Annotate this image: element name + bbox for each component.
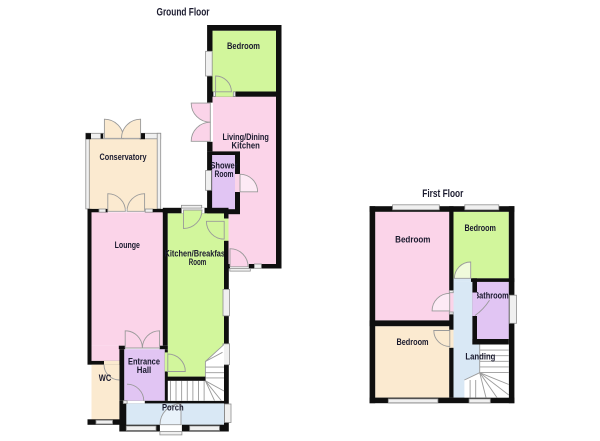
svg-text:WC: WC: [99, 373, 112, 383]
svg-text:Porch: Porch: [162, 403, 184, 413]
svg-text:First Floor: First Floor: [422, 188, 463, 200]
svg-text:Bathroom: Bathroom: [474, 291, 509, 301]
svg-text:Landing: Landing: [465, 352, 495, 362]
svg-text:Bedroom: Bedroom: [396, 337, 428, 347]
svg-text:Room: Room: [215, 169, 234, 179]
svg-text:Bedroom: Bedroom: [464, 223, 496, 233]
svg-text:Room: Room: [189, 257, 207, 267]
svg-text:Lounge: Lounge: [115, 240, 140, 250]
svg-text:Hall: Hall: [137, 365, 152, 375]
svg-text:Bedroom: Bedroom: [227, 41, 260, 51]
svg-text:Kitchen: Kitchen: [232, 141, 260, 151]
svg-text:Bedroom: Bedroom: [395, 235, 430, 245]
svg-text:Ground Floor: Ground Floor: [157, 6, 210, 18]
svg-text:Conservatory: Conservatory: [100, 152, 147, 162]
